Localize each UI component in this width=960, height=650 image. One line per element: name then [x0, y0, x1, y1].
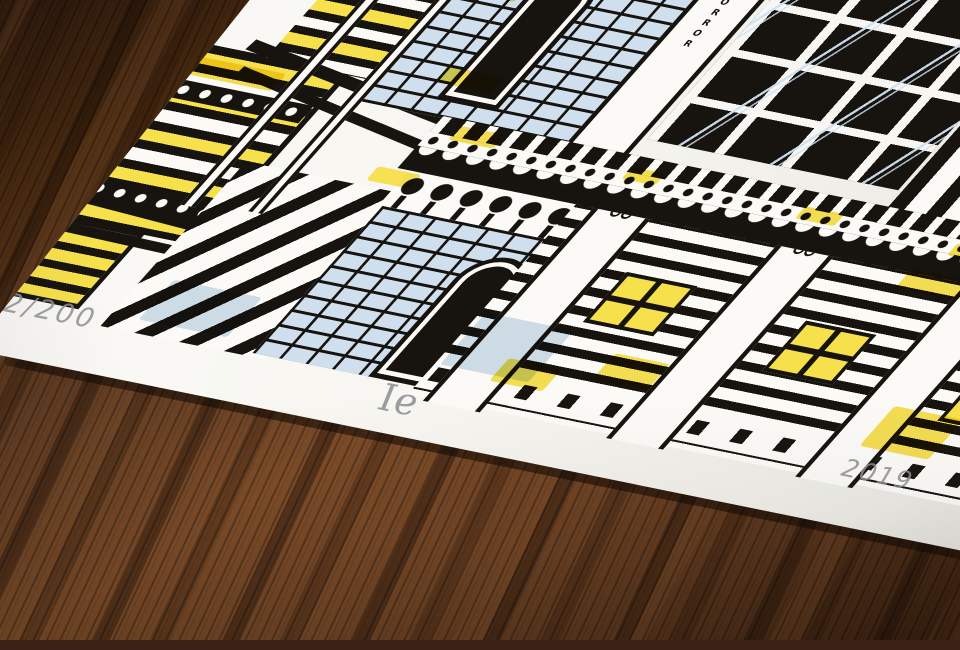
arch-window — [436, 0, 612, 111]
yellow-window — [762, 321, 877, 386]
artist-monogram-signature: Ie — [376, 375, 421, 425]
yellow-window — [583, 272, 698, 337]
